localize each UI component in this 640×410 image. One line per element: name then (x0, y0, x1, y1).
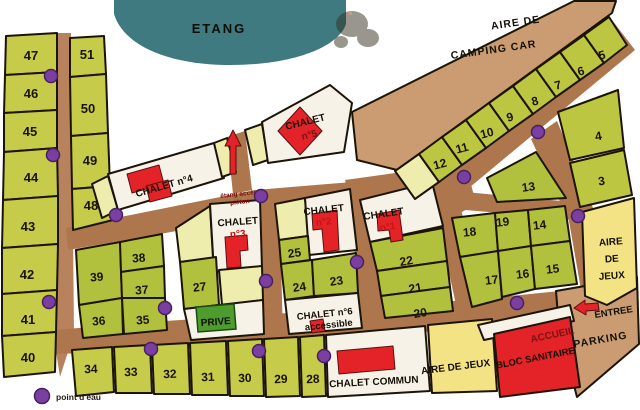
plot-37-label: 37 (135, 283, 150, 298)
prive-label: PRIVE (200, 316, 231, 329)
plot-24-label: 24 (292, 279, 307, 295)
water-point-icon (351, 256, 364, 269)
plot-34-label: 34 (84, 362, 98, 376)
plot-42-label: 42 (20, 267, 34, 282)
plot-30-label: 30 (238, 371, 252, 385)
plot-47-label: 47 (24, 48, 38, 63)
water-point-icon (511, 297, 524, 310)
plot-13-label: 13 (521, 179, 536, 195)
plot-16-label: 16 (515, 266, 530, 281)
plot-17-label: 17 (484, 272, 499, 287)
water-point-icon (572, 210, 585, 223)
plot-45-label: 45 (23, 124, 37, 139)
chalet3-num: n°3 (230, 228, 247, 240)
plot-29-label: 29 (274, 372, 288, 386)
plot-29 (264, 337, 300, 397)
aire-jeux-right-label-2: DE (605, 254, 620, 266)
plot-35-label: 35 (136, 313, 151, 328)
water-point-icon (458, 171, 471, 184)
plot-49-label: 49 (83, 153, 97, 168)
legend-water-point-icon (35, 389, 50, 404)
water-point-icon (253, 345, 266, 358)
water-point-icon (43, 296, 56, 309)
plot-32-label: 32 (163, 367, 177, 381)
plot-27-label: 27 (192, 279, 207, 294)
legend-label: point d'eau (56, 392, 101, 402)
pale-plot-3 (275, 198, 308, 240)
plot-28 (300, 335, 326, 397)
etang-label: ETANG (192, 21, 247, 36)
plot-22-label: 22 (399, 253, 415, 269)
water-point-icon (145, 343, 158, 356)
plot-20-label: 20 (413, 305, 429, 321)
plot-36-label: 36 (92, 314, 107, 329)
water-point-icon (45, 70, 58, 83)
aire-de-jeux-right (582, 198, 637, 305)
plot-51-label: 51 (80, 47, 94, 62)
water-point-icon (260, 275, 273, 288)
plot-43-label: 43 (21, 219, 35, 234)
plot-14-label: 14 (532, 217, 547, 232)
plot-40-label: 40 (21, 350, 35, 365)
plot-41-label: 41 (21, 312, 35, 327)
aire-jeux-right-label-3: JEUX (598, 270, 625, 283)
plot-38-label: 38 (132, 251, 147, 266)
plot-39-label: 39 (90, 270, 105, 285)
water-point-icon (255, 190, 268, 203)
chalet1-num: n°1 (379, 221, 396, 234)
plot-31-label: 31 (201, 370, 215, 384)
pale-plot-2 (219, 266, 263, 305)
plot-23-label: 23 (329, 273, 344, 289)
water-point-icon (318, 350, 331, 363)
plot-48-label: 48 (84, 198, 98, 213)
chalet2-num: n°2 (315, 216, 332, 229)
plot-31 (190, 341, 228, 395)
water-point-icon (110, 209, 123, 222)
plot-19-label: 19 (495, 214, 510, 229)
plot-25-label: 25 (287, 245, 302, 261)
campground-map: ETANG AIRE DE CAMPING CAR 47 46 45 44 43… (0, 0, 640, 410)
plot-50-label: 50 (81, 101, 95, 116)
site-map-canvas: ETANG AIRE DE CAMPING CAR 47 46 45 44 43… (0, 0, 640, 410)
aire-jeux-right-label-1: AIRE (599, 236, 624, 249)
plot-46-label: 46 (24, 86, 38, 101)
plot-18-label: 18 (462, 224, 477, 239)
plots-midleft-block (76, 234, 167, 338)
trees-sketch-icon (334, 11, 379, 48)
water-point-icon (47, 149, 60, 162)
chalet-commun-building (337, 346, 395, 374)
water-point-icon (532, 126, 545, 139)
plot-15-label: 15 (545, 261, 560, 276)
plot-21-label: 21 (408, 280, 424, 296)
plot-33-label: 33 (124, 365, 138, 379)
water-point-icon (159, 302, 172, 315)
plot-28-label: 28 (306, 372, 320, 386)
plot-44-label: 44 (24, 170, 39, 185)
